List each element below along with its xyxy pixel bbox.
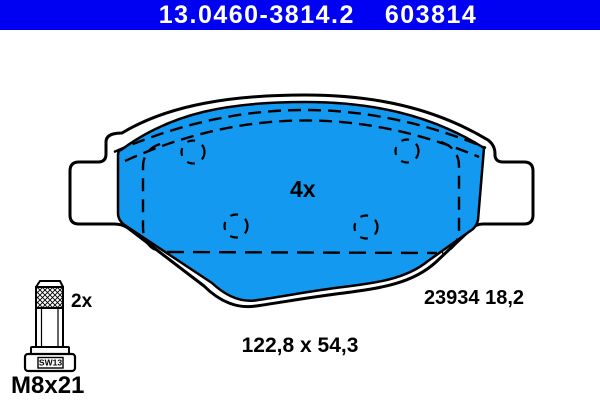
bolt-quantity-label: 2x bbox=[71, 291, 93, 312]
pad-dimensions-label: 122,8 x 54,3 bbox=[242, 334, 359, 357]
bolt-shank bbox=[36, 308, 63, 347]
bolt-icon: SW13 bbox=[25, 281, 75, 371]
brake-pad-technical-drawing: 4x 23934 18,2 122,8 x 54,3 SW13 2x M8x21 bbox=[0, 0, 600, 400]
bolt-size-label: M8x21 bbox=[11, 372, 84, 399]
wrench-size-label: SW13 bbox=[39, 358, 62, 368]
bolt-knurl-section bbox=[36, 287, 63, 308]
product-drawing-page: 13.0460-3814.2 603814 4x 23934 18,2 122,… bbox=[0, 0, 600, 400]
wva-reference-label: 23934 18,2 bbox=[424, 287, 524, 309]
pad-quantity-label: 4x bbox=[290, 176, 316, 202]
